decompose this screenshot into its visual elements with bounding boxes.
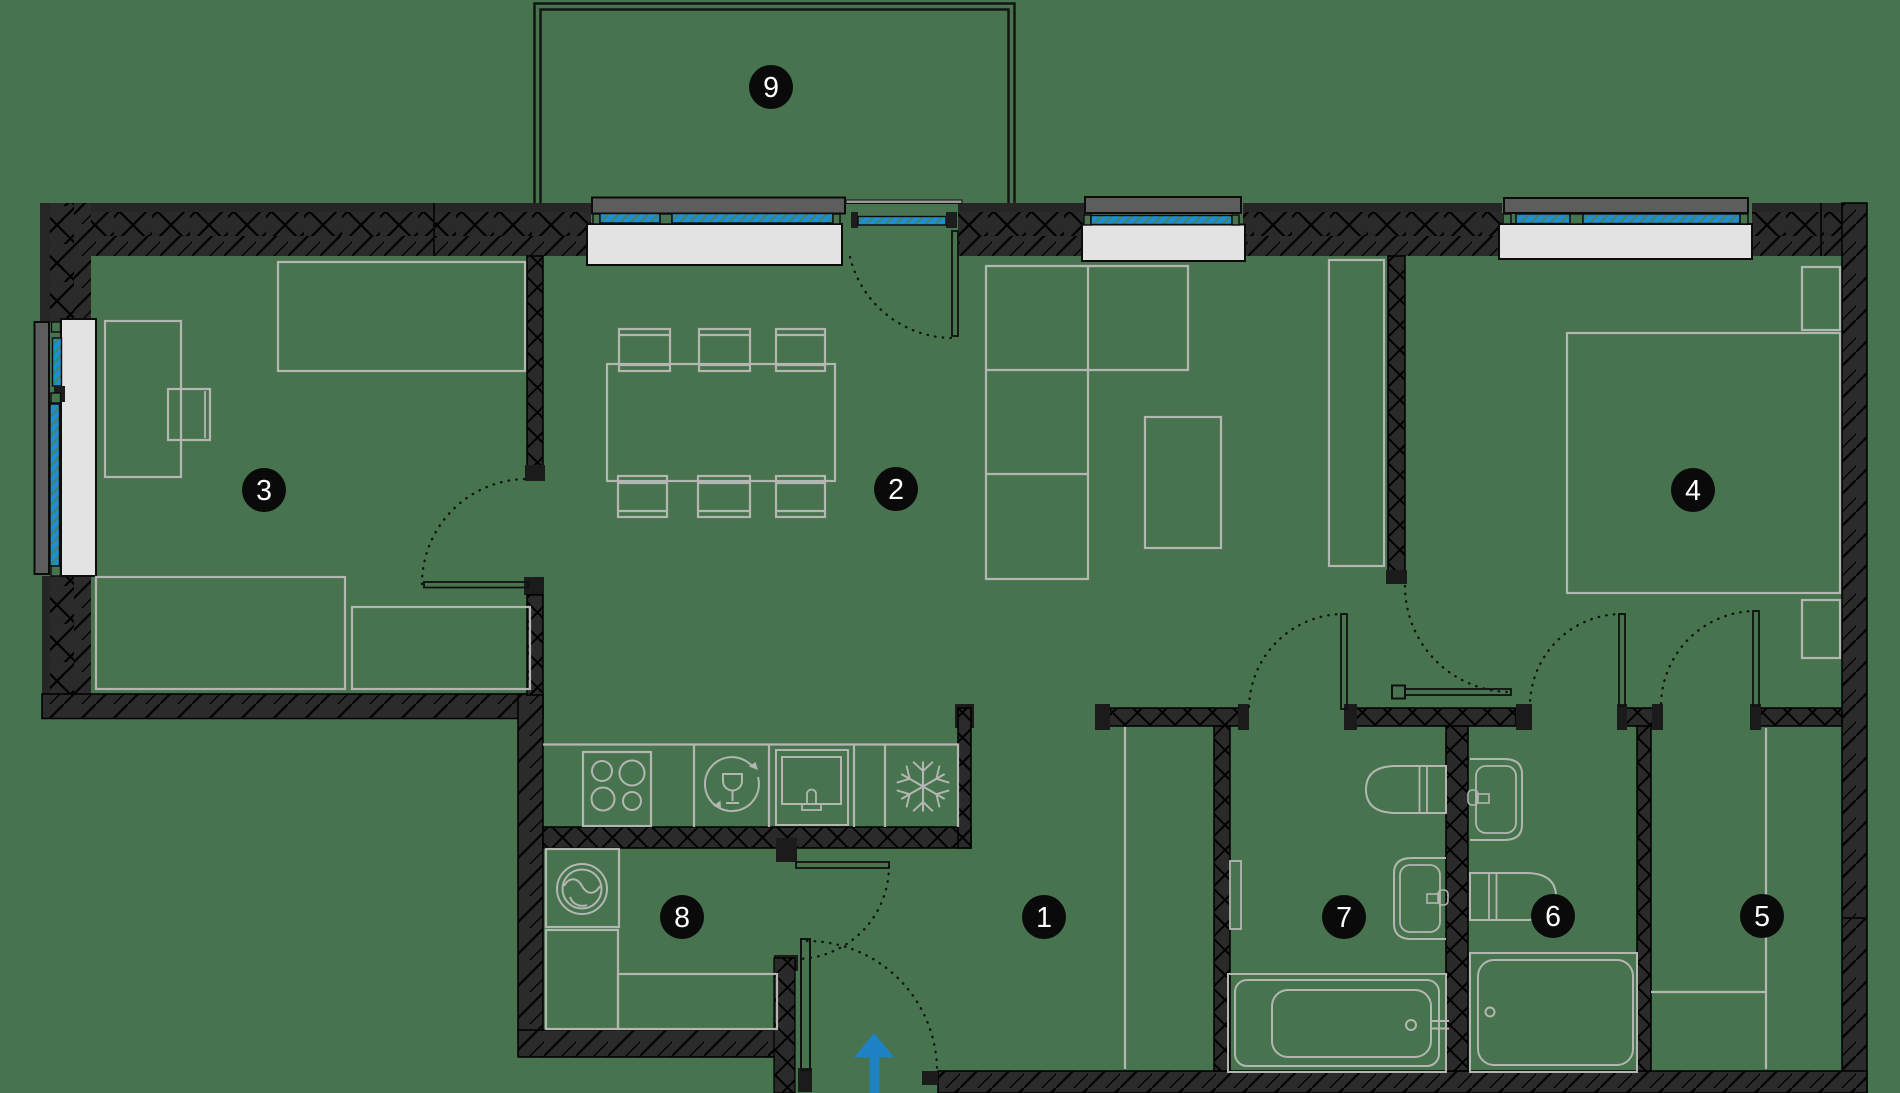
svg-text:5: 5	[1754, 901, 1770, 933]
svg-text:7: 7	[1336, 902, 1352, 934]
svg-text:8: 8	[674, 902, 690, 934]
svg-text:6: 6	[1545, 901, 1561, 933]
svg-text:3: 3	[256, 475, 272, 507]
svg-text:9: 9	[763, 72, 779, 104]
svg-text:2: 2	[888, 474, 904, 506]
svg-text:4: 4	[1685, 475, 1701, 507]
svg-text:1: 1	[1036, 902, 1052, 934]
